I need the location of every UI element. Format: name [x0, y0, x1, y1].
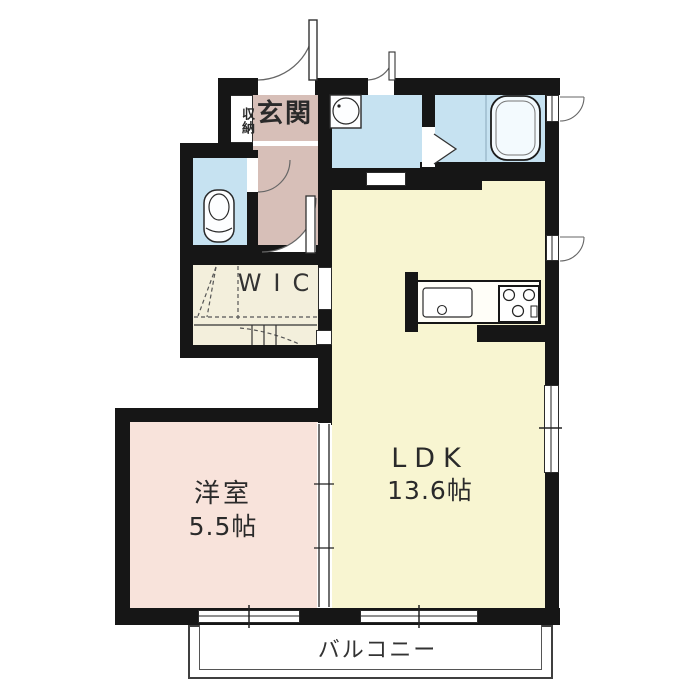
wall-block-bottom: [180, 345, 332, 358]
wall-bath-bottom-left: [420, 181, 482, 190]
yoshitsu-size: 5.5帖: [153, 513, 293, 542]
washroom-outer-opening: [368, 78, 394, 95]
entrance-door-icon: [258, 20, 317, 80]
ldk-side-window: [544, 385, 559, 473]
kitchen-window: [546, 235, 559, 261]
washroom-sliding-door: [366, 172, 406, 186]
washroom-floor: [332, 95, 422, 168]
wall-bottom: [115, 608, 560, 625]
genkan-label: 玄関: [252, 100, 318, 130]
entrance-opening: [258, 78, 315, 95]
wall-yoshitsu-left: [115, 408, 130, 622]
yoshitsu-label: 洋室 5.5帖: [153, 480, 293, 542]
genkan-step-line: [253, 141, 318, 146]
wall-kitchen-stub: [405, 272, 418, 332]
yoshitsu-balcony-window: [198, 610, 300, 623]
ldk-label: LDK 13.6帖: [358, 443, 502, 506]
shuno-label: 収納: [230, 98, 253, 143]
wall-kitchen-bar: [477, 325, 552, 342]
ldk-floor-notch: [482, 181, 545, 190]
wall-bath-bottom: [420, 162, 545, 181]
ldk-size: 13.6帖: [358, 477, 502, 506]
ldk-name: LDK: [358, 443, 502, 474]
ldk-floor: [332, 190, 545, 608]
toilet-door-opening: [247, 158, 258, 192]
kitchen-window-swing-icon: [560, 237, 584, 261]
yoshitsu-name: 洋室: [153, 480, 293, 510]
washroom-outer-door-icon: [368, 52, 395, 80]
bathroom-window: [546, 95, 559, 122]
ldk-balcony-window: [360, 610, 478, 623]
wall-yoshitsu-top: [115, 408, 332, 422]
toilet-room-floor: [193, 158, 247, 245]
bathroom-door-opening: [422, 127, 435, 167]
floor-plan: 収納 玄関 WIC LDK 13.6帖 洋室 5.5帖 バルコニー: [0, 0, 700, 700]
wall-right: [545, 78, 559, 622]
balcony-label: バルコニー: [280, 638, 475, 663]
bathroom-floor: [435, 95, 545, 162]
wall-hall-bottom: [180, 245, 332, 265]
wic-label: WIC: [232, 270, 327, 298]
bathroom-window-swing-icon: [560, 97, 584, 121]
wic-lower-opening: [316, 330, 332, 345]
